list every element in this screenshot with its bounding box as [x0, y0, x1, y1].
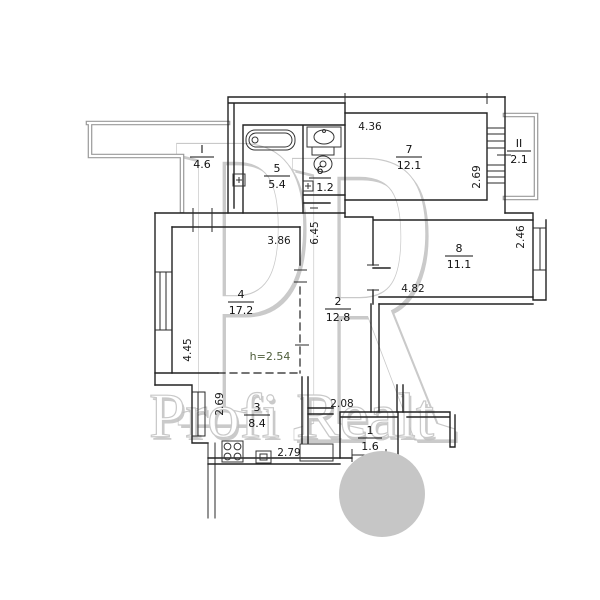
svg-text:17.2: 17.2 — [229, 304, 254, 317]
svg-text:5: 5 — [274, 162, 281, 175]
dim-4-45: 4.45 — [182, 338, 194, 361]
svg-text:1.6: 1.6 — [361, 440, 379, 453]
svg-text:I: I — [200, 143, 203, 156]
dim-2-69-kitchen: 2.69 — [214, 392, 226, 415]
svg-text:12.8: 12.8 — [326, 311, 351, 324]
svg-text:2.1: 2.1 — [510, 153, 528, 166]
dim-2-46: 2.46 — [515, 225, 527, 249]
svg-text:7: 7 — [406, 143, 413, 156]
svg-text:II: II — [516, 137, 523, 150]
ceiling-height-note: h=2.54 — [250, 350, 291, 363]
svg-text:4.6: 4.6 — [193, 158, 211, 171]
svg-text:5.4: 5.4 — [268, 178, 286, 191]
dim-2-08: 2.08 — [330, 398, 353, 410]
svg-text:6: 6 — [317, 164, 324, 177]
dim-4-36: 4.36 — [358, 121, 382, 133]
svg-text:8: 8 — [456, 242, 463, 255]
svg-text:12.1: 12.1 — [397, 159, 422, 172]
svg-text:4: 4 — [238, 288, 245, 301]
svg-text:3: 3 — [254, 401, 261, 414]
svg-text:2: 2 — [335, 295, 342, 308]
dim-6-45: 6.45 — [309, 221, 321, 244]
watermark-circle — [339, 451, 425, 537]
svg-text:8.4: 8.4 — [248, 417, 266, 430]
svg-text:11.1: 11.1 — [447, 258, 472, 271]
floorplan-canvas: P P R R Profi Realt Profi Realt — [0, 0, 600, 600]
room-label-balcony-2: II 2.1 — [507, 137, 531, 166]
svg-text:1: 1 — [367, 424, 374, 437]
dim-2-79: 2.79 — [277, 447, 300, 459]
floorplan-image: P P R R Profi Realt Profi Realt — [0, 0, 600, 600]
dim-3-86: 3.86 — [267, 235, 291, 247]
svg-text:1.2: 1.2 — [316, 181, 334, 194]
dim-2-69-room7: 2.69 — [471, 165, 483, 188]
dim-4-82: 4.82 — [401, 283, 424, 295]
